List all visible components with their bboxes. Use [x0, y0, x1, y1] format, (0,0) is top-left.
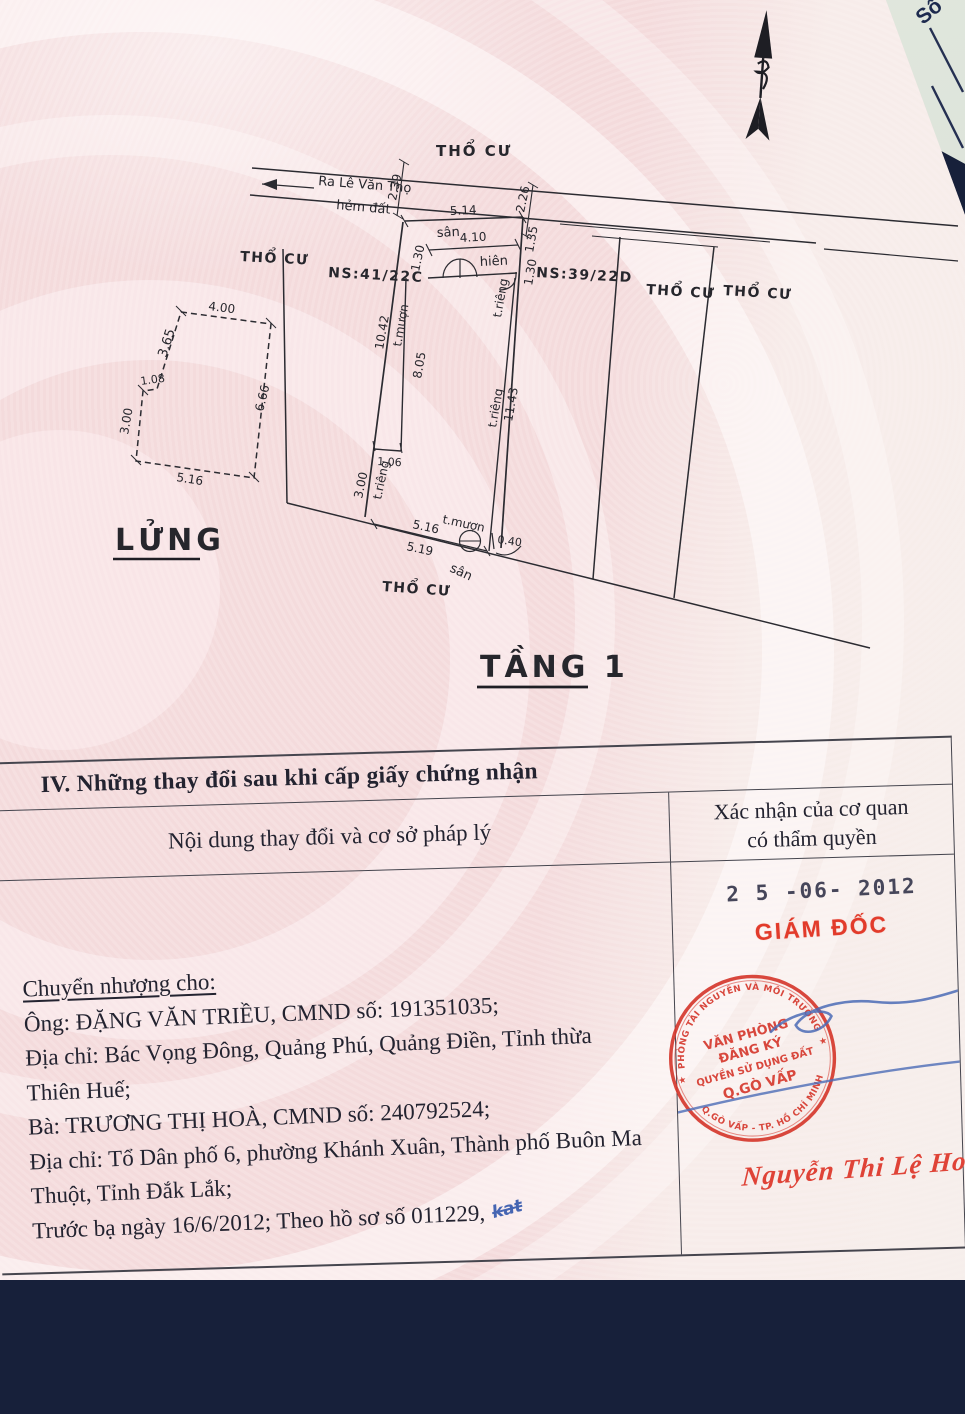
column-header-right-line1: Xác nhận của cơ quan: [713, 791, 909, 825]
change-content-cell: Chuyển nhượng cho: Ông: ĐẶNG VĂN TRIỀU, …: [0, 863, 682, 1274]
stamp-outer-circle: [660, 966, 845, 1151]
san-bottom-label: sân: [447, 561, 474, 584]
stamp-outer-circle-2: [660, 966, 845, 1151]
san-top-label: sân: [436, 225, 460, 241]
tho-cu-bottom-label: THỔ CƯ: [382, 575, 452, 600]
floor-title: TẦNG 1: [480, 645, 629, 685]
tho-cu-right-1-label: THỔ CƯ: [646, 278, 716, 302]
official-stamp: PHÒNG TÀI NGUYÊN VÀ MÔI TRƯỜNG Q.GÒ VẤP …: [660, 966, 845, 1151]
t-rieng-upper-label: t.riêng: [490, 277, 511, 318]
dim-5-14: 5.14: [450, 203, 477, 218]
dim-10-42: 10.42: [372, 314, 392, 350]
dim-5-19: 5.19: [405, 539, 434, 558]
dim-8-05: 8.05: [410, 351, 428, 380]
mezz-dim-5-16: 5.16: [176, 470, 205, 488]
tho-cu-right-2-label: THỔ CƯ: [723, 279, 793, 303]
pen-note: kat: [490, 1196, 525, 1223]
t-muon-left-label: t.mượn: [390, 303, 411, 348]
column-header-right: Xác nhận của cơ quan có thẩm quyền: [669, 785, 954, 862]
dim-1-30-left: 1.30: [408, 244, 427, 273]
dim-1-30-right: 1.30: [521, 258, 539, 287]
mezzanine-ticks: [131, 306, 276, 482]
frame-line: [930, 28, 963, 92]
hien-label: hiên: [479, 254, 508, 270]
section-iv-table: IV. Những thay đổi sau khi cấp giấy chứn…: [0, 736, 965, 1276]
tho-cu-top-label: THỔ CƯ: [436, 138, 512, 160]
change-content-text: Chuyển nhượng cho: Ông: ĐẶNG VĂN TRIỀU, …: [22, 947, 665, 1248]
column-header-right-line2: có thẩm quyền: [747, 821, 877, 854]
direction-arrow-head: [262, 179, 277, 190]
photographed-certificate: Số: [0, 0, 965, 1280]
approval-cell: 2 5 -06- 2012 GIÁM ĐỐC PHÒNG TÀI NGUYÊN …: [671, 855, 965, 1255]
certificate-page: Ra Lê Văn Thọ hẻm đất 2.39 2.26 THỔ CƯ T…: [0, 0, 965, 1280]
main-parcel-lines: [365, 159, 538, 556]
mezz-dim-4-00: 4.00: [208, 299, 236, 316]
table-body-row: Chuyển nhượng cho: Ông: ĐẶNG VĂN TRIỀU, …: [0, 855, 965, 1274]
mezzanine-title: LỬNG: [115, 518, 225, 558]
mezz-dim-3-00: 3.00: [117, 407, 135, 436]
t-rieng-lower-label: t.riêng: [370, 459, 392, 500]
mezzanine-outline: [136, 312, 271, 478]
director-title: GIÁM ĐỐC: [672, 907, 956, 952]
floor-plan: Ra Lê Văn Thọ hẻm đất 2.39 2.26 THỔ CƯ T…: [0, 0, 965, 720]
signature: Nguyễn Thi Lệ Hoa: [741, 1145, 965, 1193]
ns-39-22d-label: NS:39/22D: [536, 265, 633, 286]
dim-2-39: 2.39: [385, 173, 404, 202]
mezz-dim-3-65: 3.65: [156, 327, 179, 359]
alley-label: hẻm đất: [336, 198, 391, 218]
dim-4-10: 4.10: [459, 230, 486, 245]
mezz-dim-6-66: 6.66: [252, 383, 272, 412]
t-muon-bottom-label: t.mượn: [441, 512, 486, 535]
dim-1-35-right: 1.35: [522, 225, 540, 254]
stamp-star-left: ★: [677, 1074, 688, 1087]
date-stamp: 2 5 -06- 2012: [671, 872, 955, 909]
north-arrow-icon: [745, 9, 778, 140]
mezz-dim-1-08: 1.08: [140, 372, 166, 388]
tho-cu-left-label: THỔ CƯ: [240, 245, 310, 269]
